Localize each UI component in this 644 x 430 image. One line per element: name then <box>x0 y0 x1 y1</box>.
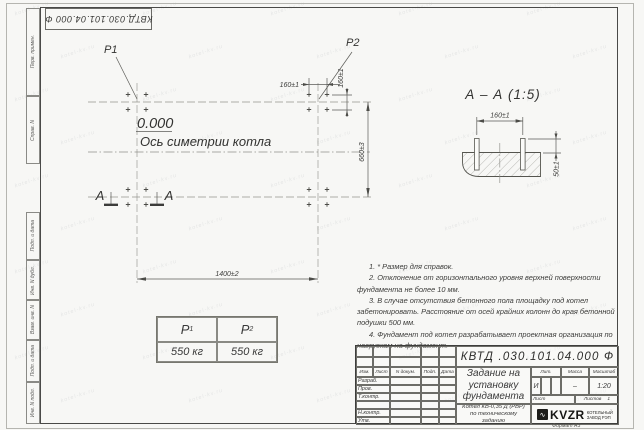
p1-leader-line <box>116 57 137 99</box>
company-name: КОТЕЛЬНЫЙ ЗАВОД РЭП <box>587 410 613 420</box>
stamp-header-ndokum: N докум. <box>390 367 421 377</box>
anchor-bolt-mark <box>144 107 148 111</box>
stamp-header-izm: Изм. <box>356 367 373 377</box>
bolt-row-centerlines <box>88 102 371 197</box>
stamp-empty-cell <box>390 417 421 425</box>
anchor-bolt-mark <box>126 202 130 206</box>
stamp-header-data: Дата <box>439 367 456 377</box>
section-letter-left: А <box>95 188 105 203</box>
stamp-empty-cell <box>439 417 456 425</box>
anchor-bolt-groups <box>126 92 329 206</box>
stamp-empty-cell <box>421 409 439 417</box>
stamp-header-podp: Подп. <box>421 367 439 377</box>
p2-label: P2 <box>346 37 359 49</box>
note-1: 1. * Размер для справок. <box>357 261 619 272</box>
loads-table-header-p2: P2 <box>217 317 277 342</box>
stamp-empty-cell <box>439 401 456 409</box>
p1-label: P1 <box>104 44 117 56</box>
anchor-bolt-mark <box>126 92 130 96</box>
anchor-bolt-mark <box>126 187 130 191</box>
stamp-row-tkontr: Т.контр. <box>356 393 390 401</box>
anchor-bolt-mark <box>126 107 130 111</box>
stamp-empty-cell <box>373 346 390 357</box>
stamp-scale-value: 1:20 <box>589 377 619 395</box>
stamp-empty-cell <box>373 357 390 367</box>
stamp-header-list: Лист <box>373 367 390 377</box>
stamp-empty-cell <box>390 401 421 409</box>
loads-table-value-p2: 550 кг <box>217 342 277 362</box>
format-label: Формат А3 <box>552 423 580 429</box>
stamp-empty-cell <box>439 385 456 393</box>
stamp-row-razrab: Разраб. <box>356 377 390 385</box>
stamp-empty-cell <box>390 409 421 417</box>
note-2: 2. Отклонение от горизонтального уровня … <box>357 272 619 295</box>
stamp-product-note: Котел КВ-0,35 Д (РВР) по техническому за… <box>456 404 531 425</box>
loads-table-value-p1: 550 кг <box>157 342 217 362</box>
stamp-row-nkontr: Н.контр. <box>356 409 390 417</box>
anchor-stud-right <box>521 139 526 171</box>
axis-label: Ось симетрии котла <box>140 134 271 149</box>
stamp-row-empty <box>356 401 390 409</box>
stamp-empty-cell <box>390 393 421 401</box>
kvzr-logo-text: KVZR <box>550 408 585 422</box>
anchor-bolt-mark <box>307 92 311 96</box>
stamp-empty-cell <box>356 357 373 367</box>
section-dim-160-label: 160±1 <box>490 113 510 120</box>
anchor-bolt-mark <box>144 187 148 191</box>
note-3: 3. В случае отсутствия бетонного пола пл… <box>357 295 619 329</box>
section-title: А – А (1:5) <box>464 87 541 102</box>
anchor-bolt-mark <box>307 107 311 111</box>
stamp-empty-cell <box>390 357 421 367</box>
stamp-sheets-cell: Листов 1 <box>575 395 619 404</box>
section-dim-50-label: 50±1 <box>554 161 561 177</box>
bolt-column-centerlines <box>137 83 318 283</box>
stamp-empty-cell <box>439 357 456 367</box>
dim-160-right-lines <box>332 88 352 117</box>
section-cut-stems <box>111 192 157 204</box>
dim-160-right-label: 160±1 <box>338 68 345 88</box>
stamp-empty-cell <box>421 401 439 409</box>
stamp-doc-title: Задание на установку фундамента <box>456 367 531 404</box>
stamp-sheets-label: Листов <box>584 397 601 402</box>
stamp-mass-label: Масса <box>561 367 589 377</box>
section-letter-right: А <box>164 188 174 203</box>
stamp-empty-cell <box>390 385 421 393</box>
technical-notes: 1. * Размер для справок. 2. Отклонение о… <box>357 261 619 351</box>
stamp-empty-cell <box>390 346 421 357</box>
title-block: Изм. Лист N докум. Подп. Дата Разраб. Пр… <box>355 345 618 424</box>
stamp-empty-cell <box>356 346 373 357</box>
anchor-bolt-mark <box>325 187 329 191</box>
stamp-empty-cell <box>421 393 439 401</box>
company-line2: ЗАВОД РЭП <box>587 415 611 420</box>
stamp-mass-value: – <box>561 377 589 395</box>
anchor-stud-left <box>475 139 480 171</box>
anchor-bolt-mark <box>325 202 329 206</box>
stamp-lit-label: Лит. <box>531 367 561 377</box>
anchor-bolt-mark <box>144 202 148 206</box>
stamp-sheet-label: Лист <box>531 395 575 404</box>
stamp-lit-value: И <box>531 377 541 395</box>
loads-table-header-p1: P1 <box>157 317 217 342</box>
stamp-empty-cell <box>421 357 439 367</box>
dim-1400-label: 1400±2 <box>215 271 238 278</box>
stamp-empty-cell <box>439 409 456 417</box>
p1-symbol: P <box>181 322 190 337</box>
dim-160-top-label: 160±1 <box>280 82 300 89</box>
dim-660-label: 660±3 <box>359 142 366 162</box>
loads-table: P1 P2 550 кг 550 кг <box>156 316 278 363</box>
stamp-empty-cell <box>551 377 561 395</box>
level-mark: 0.000 <box>137 116 173 132</box>
anchor-bolt-mark <box>325 107 329 111</box>
anchor-bolt-mark <box>144 92 148 96</box>
kvzr-logo-icon: ∿ <box>537 409 548 420</box>
stamp-empty-cell <box>541 377 551 395</box>
stamp-empty-cell <box>390 377 421 385</box>
anchor-bolt-mark <box>307 187 311 191</box>
stamp-empty-cell <box>439 393 456 401</box>
stamp-empty-cell <box>421 417 439 425</box>
anchor-bolt-mark <box>325 92 329 96</box>
stamp-empty-cell <box>421 377 439 385</box>
stamp-empty-cell <box>421 385 439 393</box>
stamp-row-utv: Утв. <box>356 417 390 425</box>
stamp-designation: КВТД .030.101.04.000 Ф <box>456 346 619 367</box>
stamp-company-cell: ∿ KVZR КОТЕЛЬНЫЙ ЗАВОД РЭП <box>531 404 619 425</box>
stamp-empty-cell <box>439 377 456 385</box>
p2-subscript: 2 <box>249 326 253 333</box>
stamp-row-prov: Пров. <box>356 385 390 393</box>
stamp-empty-cell <box>439 346 456 357</box>
anchor-bolt-mark <box>307 202 311 206</box>
stamp-sheets-value: 1 <box>607 397 610 402</box>
stamp-scale-label: Масштаб <box>589 367 619 377</box>
stamp-empty-cell <box>421 346 439 357</box>
p1-subscript: 1 <box>189 326 193 333</box>
